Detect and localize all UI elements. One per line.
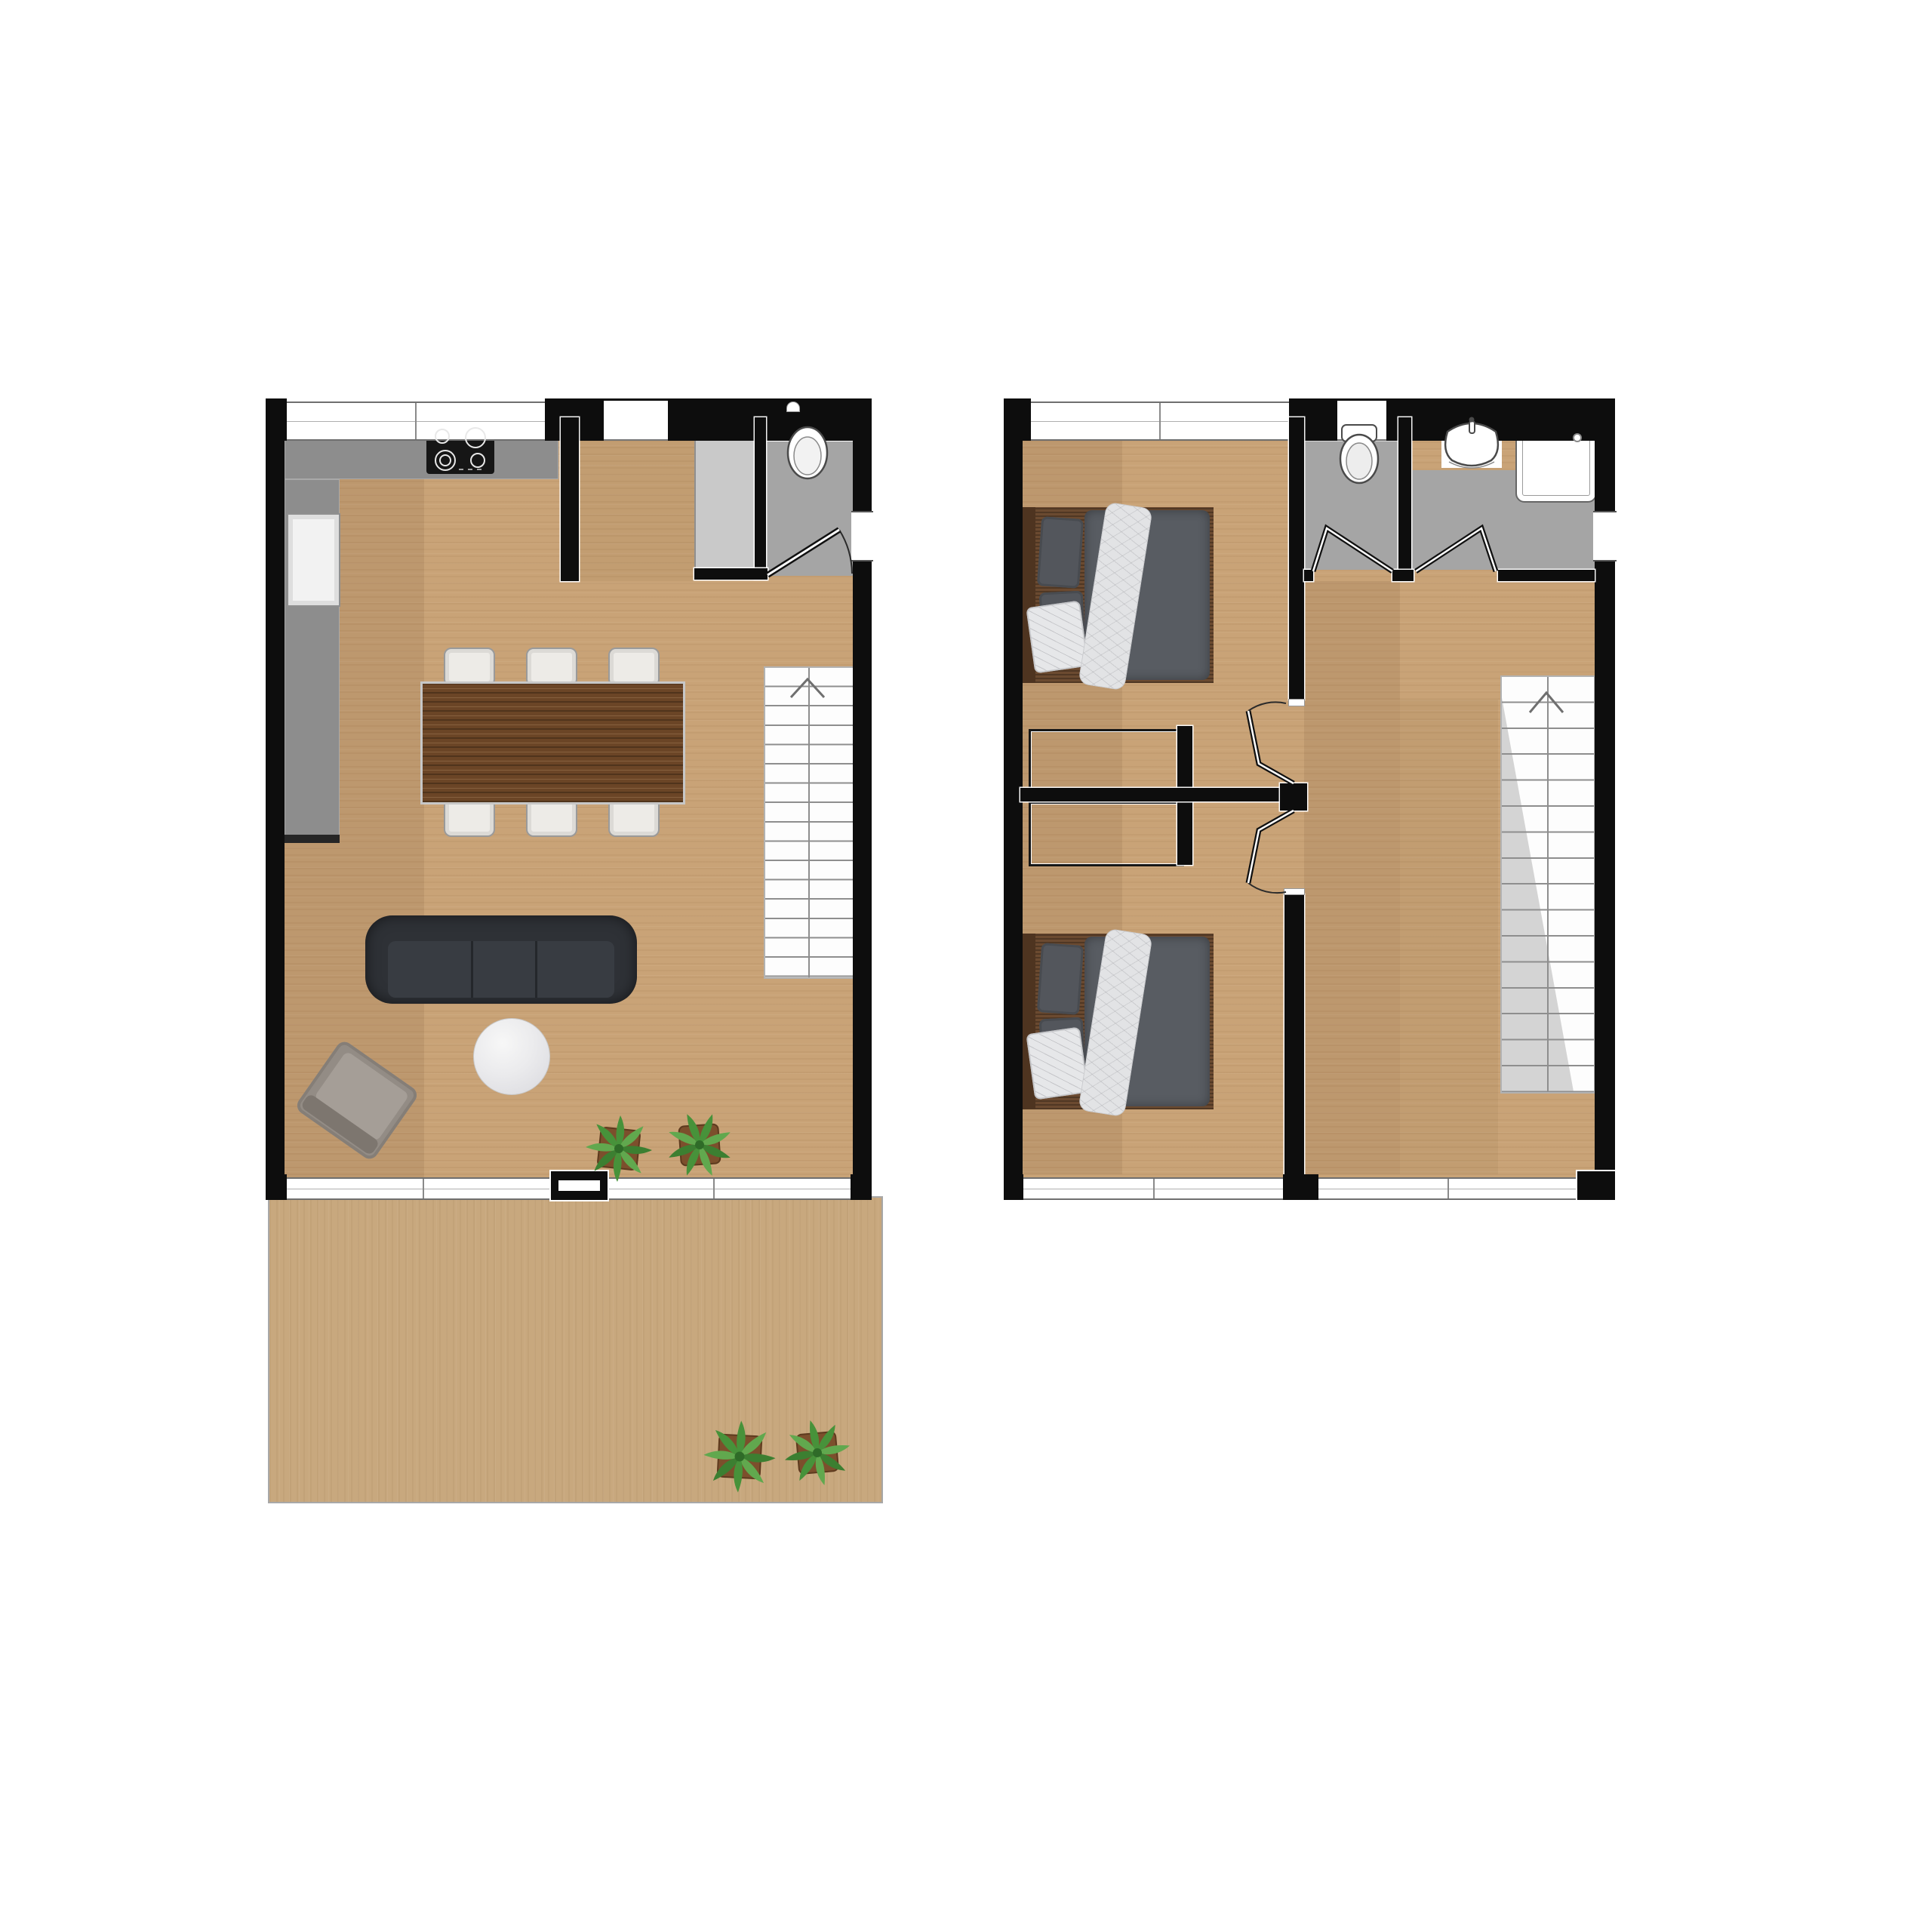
wall-wet-bottom bbox=[1498, 570, 1595, 581]
upper-floor-plan bbox=[0, 0, 1932, 1932]
wall-top bbox=[1004, 398, 1031, 441]
window-bedroom-1 bbox=[1031, 401, 1289, 441]
bed-pillow-white bbox=[1026, 600, 1089, 673]
floor-shading bbox=[1400, 700, 1498, 1174]
staircase-upper bbox=[1500, 675, 1595, 1094]
window-hall-bottom bbox=[1318, 1177, 1577, 1200]
wall-bottom bbox=[1283, 1174, 1318, 1200]
wall-wet-bottom bbox=[1392, 570, 1414, 581]
floor-shading bbox=[1304, 581, 1400, 1174]
bed-double bbox=[1023, 507, 1214, 683]
bed-pillow-white bbox=[1026, 1026, 1089, 1100]
bed-pillow bbox=[1037, 516, 1084, 589]
wall-cap bbox=[1284, 889, 1304, 894]
floor-plan-canvas bbox=[0, 0, 1932, 1932]
window-bedroom-2 bbox=[1023, 1177, 1283, 1200]
closet-end-wall bbox=[1177, 801, 1192, 865]
wall-bottom-corner bbox=[1577, 1171, 1615, 1200]
wall-top bbox=[1386, 398, 1615, 441]
window-wc bbox=[1337, 398, 1386, 441]
window-right-wall bbox=[1593, 511, 1617, 561]
wall-wet-bottom bbox=[1304, 570, 1313, 581]
wall-bedroom-divider bbox=[1020, 788, 1283, 801]
wall-wc-bath-divider bbox=[1398, 417, 1411, 581]
closet-end-wall bbox=[1177, 726, 1192, 789]
bed-pillow bbox=[1037, 943, 1084, 1015]
wall-bedroom1-hall bbox=[1289, 417, 1304, 700]
door-post-node bbox=[1280, 783, 1307, 811]
closet-bedroom-1 bbox=[1029, 729, 1184, 792]
upper-wc-floor bbox=[1304, 441, 1398, 570]
wall-bottom bbox=[1004, 1174, 1023, 1200]
closet-bedroom-2 bbox=[1029, 801, 1184, 866]
wall-bedroom2-hall bbox=[1284, 894, 1304, 1174]
bed-double bbox=[1023, 934, 1214, 1109]
stair-midline bbox=[1547, 677, 1549, 1092]
wall-cap bbox=[1289, 700, 1304, 706]
